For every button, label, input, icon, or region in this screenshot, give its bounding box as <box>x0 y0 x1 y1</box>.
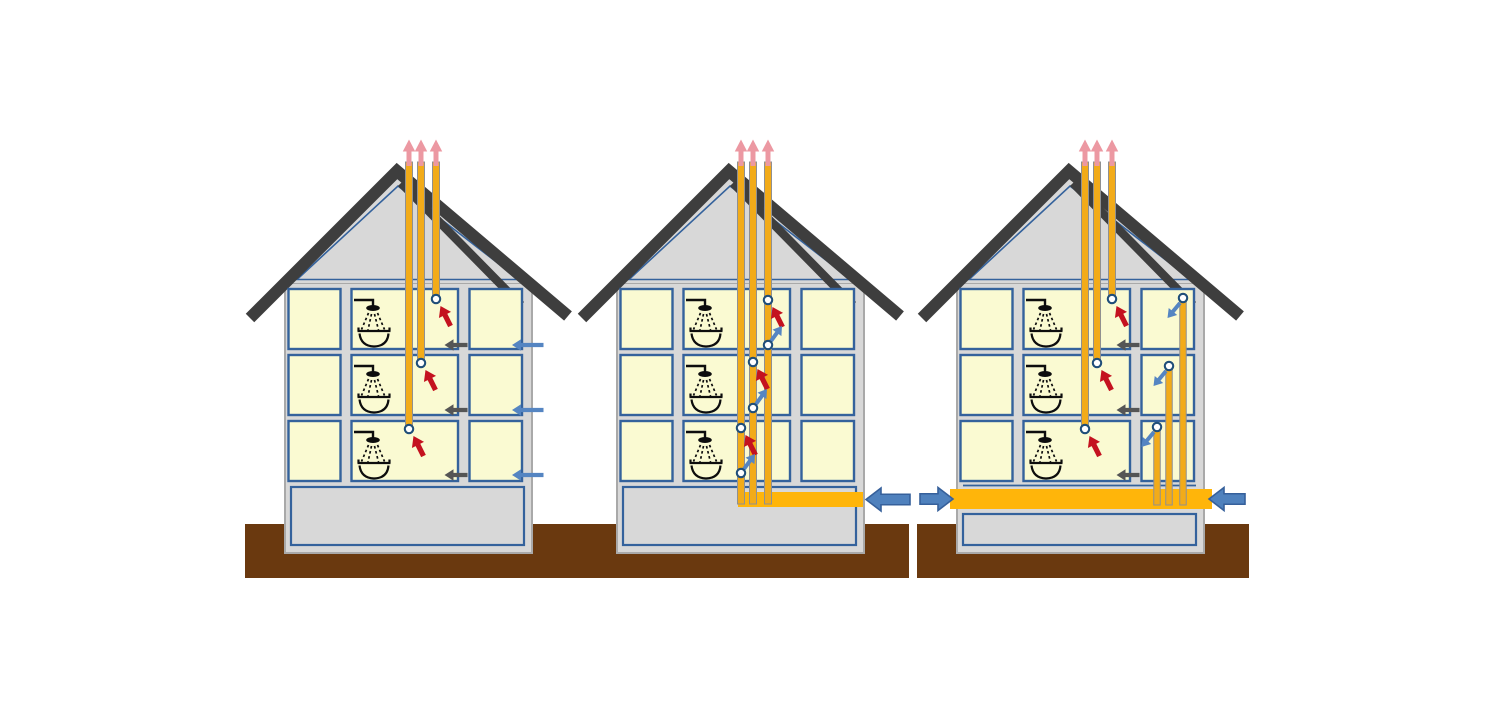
outdoor-air-intake-arrow <box>1209 488 1245 511</box>
exhaust-pipe <box>1082 162 1089 425</box>
supply-riser <box>1166 368 1173 505</box>
duct-opening <box>764 296 772 304</box>
duct-opening <box>737 424 745 432</box>
basement <box>963 514 1196 545</box>
shower-head <box>1038 305 1052 311</box>
diagram-canvas <box>0 0 1495 712</box>
room-floor3-col2 <box>352 289 459 349</box>
exhaust-pipe <box>765 162 772 504</box>
duct-opening <box>1153 423 1161 431</box>
exhaust-pipe <box>1094 162 1101 359</box>
room-floor2-col3 <box>470 355 523 415</box>
room-floor1-col2 <box>1024 421 1131 481</box>
outdoor-air-intake-arrow <box>866 488 910 511</box>
duct-opening <box>405 425 413 433</box>
room-floor2-col1 <box>289 355 341 415</box>
roof-exhaust-arrow <box>430 140 443 167</box>
roof-exhaust-arrow <box>403 140 416 167</box>
shower-head <box>698 437 712 443</box>
basement <box>291 487 524 545</box>
outdoor-air-intake-arrow <box>920 488 953 511</box>
duct-opening <box>1081 425 1089 433</box>
duct-opening <box>1179 294 1187 302</box>
room-floor2-col2 <box>1024 355 1131 415</box>
duct-opening <box>749 404 757 412</box>
roof-exhaust-arrow <box>1091 140 1104 167</box>
room-floor3-col3 <box>470 289 523 349</box>
supply-riser <box>1154 429 1161 505</box>
room-floor1-col3 <box>470 421 523 481</box>
shower-head <box>1038 437 1052 443</box>
duct-opening <box>764 341 772 349</box>
duct-opening <box>749 358 757 366</box>
exhaust-pipe <box>1109 162 1116 295</box>
shower-head <box>366 371 380 377</box>
room-floor2-col3 <box>802 355 855 415</box>
duct-opening <box>1165 362 1173 370</box>
room-floor3-col3 <box>802 289 855 349</box>
room-floor1-col3 <box>802 421 855 481</box>
shower-head <box>366 437 380 443</box>
roof-exhaust-arrow <box>1106 140 1119 167</box>
supply-riser <box>1180 300 1187 505</box>
room-floor3-col1 <box>961 289 1013 349</box>
room-floor3-col1 <box>289 289 341 349</box>
duct-opening <box>432 295 440 303</box>
duct-opening <box>1108 295 1116 303</box>
duct-opening <box>737 469 745 477</box>
exhaust-pipe <box>418 162 425 359</box>
roof-exhaust-arrow <box>1079 140 1092 167</box>
room-floor1-col1 <box>289 421 341 481</box>
room-floor1-col1 <box>621 421 673 481</box>
roof-exhaust-arrow <box>415 140 428 167</box>
shower-head <box>698 371 712 377</box>
shower-head <box>698 305 712 311</box>
exhaust-pipe <box>433 162 440 295</box>
house-2-shared-shaft-bottom-intake <box>577 140 910 579</box>
roof-exhaust-arrow <box>747 140 760 167</box>
exhaust-pipe <box>406 162 413 425</box>
exhaust-pipe <box>738 162 745 504</box>
house-3-central-supply-duct <box>917 140 1249 579</box>
room-floor2-col1 <box>621 355 673 415</box>
duct-opening <box>1093 359 1101 367</box>
room-floor2-col2 <box>352 355 459 415</box>
roof-exhaust-arrow <box>735 140 748 167</box>
ventilation-diagram <box>0 0 1495 712</box>
shower-head <box>1038 371 1052 377</box>
room-floor2-col1 <box>961 355 1013 415</box>
room-floor2-col2 <box>684 355 791 415</box>
shower-head <box>366 305 380 311</box>
room-floor3-col1 <box>621 289 673 349</box>
room-floor1-col1 <box>961 421 1013 481</box>
roof-exhaust-arrow <box>762 140 775 167</box>
house-1-individual-exhaust-ducts <box>245 140 577 579</box>
duct-opening <box>417 359 425 367</box>
